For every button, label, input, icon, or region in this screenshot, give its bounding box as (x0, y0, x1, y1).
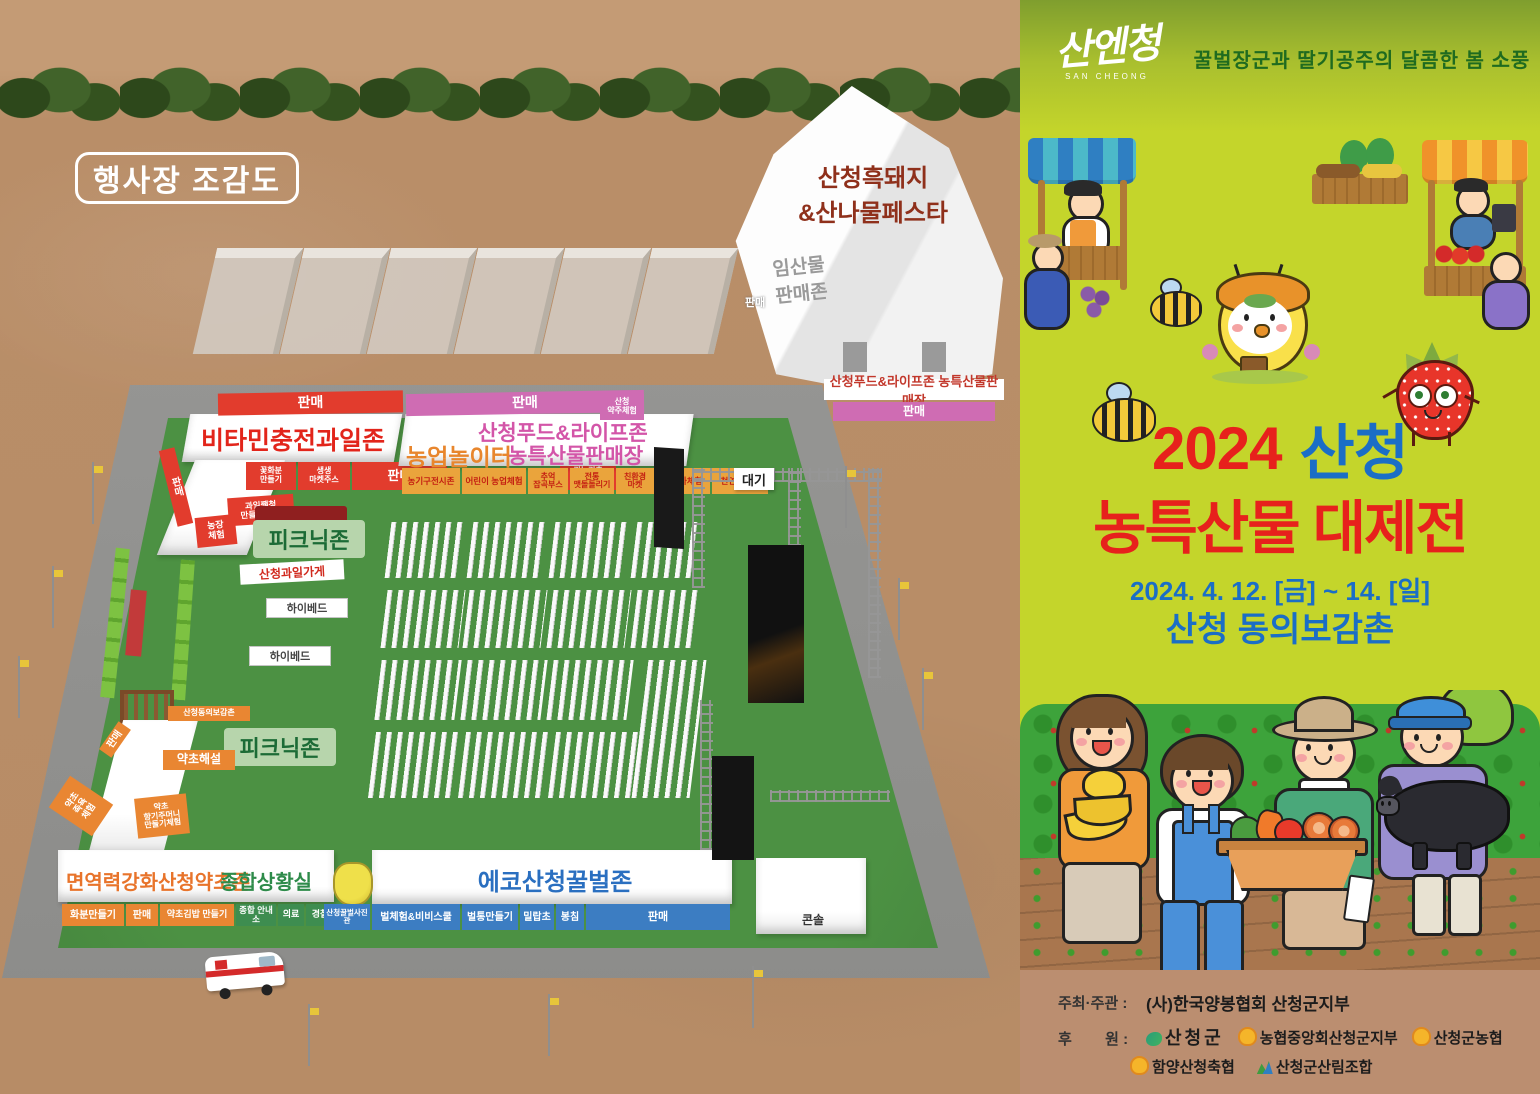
teapot-sculpture (333, 862, 373, 906)
host-label: 주최·주관 : (1058, 992, 1127, 1013)
bee-photo-booth: 산청꿀벌사진관 (324, 904, 370, 930)
flag-pole (752, 966, 754, 1028)
control-room-title: 종합상황실 (220, 866, 312, 895)
nh-logo-icon (1412, 1027, 1431, 1046)
food-booth-4: 전통 맷돌돌리기 (570, 468, 614, 494)
flag-pole (898, 578, 900, 640)
flag-pole (52, 566, 54, 628)
flag-pole (845, 466, 847, 528)
sancheong-logo: 산엔청 SAN CHEONG (1042, 28, 1172, 81)
food-booth-3: 추억 잡곡부스 (528, 468, 568, 494)
poster-date: 2024. 4. 12. [금] ~ 14. [일] (1020, 574, 1540, 604)
map-title-badge: 행사장 조감도 (75, 152, 299, 204)
bee-character (1150, 286, 1204, 328)
medical-booth: 의료 (278, 904, 304, 926)
immunity-booth-3: 약초김밥 만들기 (160, 904, 234, 926)
tent-doorway (922, 342, 946, 372)
bee-booth-3: 밀랍초 (520, 904, 554, 930)
sponsor-sancheong-gun: 산청군 (1146, 1024, 1224, 1050)
fruit-booth-1: 꽃화분 만들기 (246, 462, 296, 490)
forest-sale-label: 판매 (745, 294, 765, 310)
foodlife-banner: 산청푸드&라이프존 농특산물판매장 (824, 379, 1004, 400)
stage-screen-2 (748, 545, 804, 703)
bee-booth-4: 봉침 (556, 904, 584, 930)
sponsor-hamyang: 함양산청축협 (1130, 1056, 1235, 1077)
waiting-tent-label: 대기 (734, 468, 774, 490)
festival-poster: 행사장 조감도 (0, 0, 1540, 1094)
stage-screen-1 (654, 447, 684, 549)
tent-doorway (843, 342, 867, 372)
bee-booth-sale: 판매 (586, 904, 730, 930)
sponsor-nh-local: 산청군농협 (1412, 1027, 1503, 1048)
nh-logo-icon (1238, 1027, 1257, 1046)
stage-screen-3 (712, 756, 754, 860)
market-stall-right (1294, 140, 1534, 340)
stage-truss-tower (692, 468, 705, 588)
poster-title-line1: 2024 산청 (1020, 418, 1540, 478)
bee-booth-2: 벌통만들기 (462, 904, 518, 930)
event-poster: 산엔청 SAN CHEONG 꿀벌장군과 딸기공주의 달콤한 봄 소풍 (1020, 0, 1540, 1094)
honeybee-mascot (1212, 272, 1312, 392)
sponsor-forestry: 산청군산림조합 (1257, 1056, 1373, 1077)
food-booth-5: 친환경 마켓 (616, 468, 654, 494)
immunity-booth-2: 판매 (126, 904, 158, 926)
herb-booth-3: 약초 향기주머니 만들기체험 (134, 793, 190, 838)
fruit-booth-2: 생생 마켓주스 (298, 462, 350, 490)
flag-pole (308, 1004, 310, 1066)
bee-zone-title: 에코산청꿀벌존 (440, 862, 670, 897)
farm-experience-label: 농장 체험 (195, 514, 238, 548)
sponsor-row-2: 함양산청축협 산청군산림조합 (1130, 1056, 1530, 1077)
bee-booth-1: 벌체험&비비스쿨 (372, 904, 460, 930)
sponsor-row-1: 산청군 농협중앙회산청군지부 산청군농협 (1146, 1024, 1540, 1050)
map-title: 행사장 조감도 (93, 156, 281, 200)
highbed-2: 하이베드 (249, 646, 331, 666)
family-illustration (1020, 690, 1540, 970)
poster-tagline: 꿀벌장군과 딸기공주의 달콤한 봄 소풍 (1192, 44, 1532, 73)
ambulance (204, 942, 293, 1005)
food-booth-2: 어린이 농업체험 (462, 468, 526, 494)
fruit-zone-sale-banner: 판매 (218, 390, 403, 415)
poster-title-line2: 농특산물 대제전 (1020, 492, 1540, 554)
produce-basket (1216, 806, 1362, 888)
flag-pole (548, 994, 550, 1056)
poster-venue: 산청 동의보감촌 (1020, 606, 1540, 646)
host-name: (사)한국양봉협회 산청군지부 (1146, 990, 1350, 1015)
highbed-1: 하이베드 (266, 598, 348, 618)
logo-text: 산엔청 (1041, 22, 1174, 73)
picnic-zone-1: 피크닉존 (253, 520, 365, 558)
foodlife-banner-sale: 판매 (833, 402, 995, 421)
foodlife-title-2: 농특산물판매장 (508, 440, 643, 470)
sponsor-nh-central: 농협중앙회산청군지부 (1238, 1027, 1398, 1048)
credits-band: 주최·주관 : (사)한국양봉협회 산청군지부 후 원 : 산청군 농협중앙회산… (1020, 970, 1540, 1094)
donguibogam-label: 산청동의보감촌 (168, 706, 250, 721)
nh-logo-icon (1130, 1056, 1149, 1075)
title-region: 산청 (1300, 405, 1408, 492)
info-booth: 종합 안내소 (236, 904, 276, 926)
stage-truss-beam (770, 790, 890, 802)
forest-product-zone-label: 임산물 판매존 (759, 248, 840, 310)
sj-logo-icon (1257, 1061, 1273, 1074)
picnic-zone-2: 피크닉존 (224, 728, 336, 766)
immunity-booth-1: 화분만들기 (62, 904, 124, 926)
flag-pole (92, 462, 94, 524)
food-booth-1: 농기구전시존 (402, 468, 460, 494)
stage-truss-tower (868, 468, 881, 678)
farm-playground-title: 농업놀이터 (406, 438, 512, 472)
market-stall-left (1028, 138, 1138, 328)
console-label: 콘솔 (790, 910, 836, 928)
pig-festa-tent (733, 86, 1003, 396)
pig-festa-title: 산청흑돼지 &산나물페스타 (788, 158, 958, 228)
venue-map: 행사장 조감도 (0, 0, 1020, 1094)
herb-booth-1: 약초해설 (163, 750, 235, 770)
sponsor-label: 후 원 : (1058, 1028, 1128, 1049)
fruit-zone-title: 비타민충전과일존 (188, 424, 398, 454)
flag-pole (18, 656, 20, 718)
title-year: 2024 (1152, 414, 1281, 483)
sancheong-gun-logo-icon (1146, 1032, 1162, 1046)
illustration-man-with-pig (1372, 690, 1532, 940)
flag-pole (922, 668, 924, 730)
